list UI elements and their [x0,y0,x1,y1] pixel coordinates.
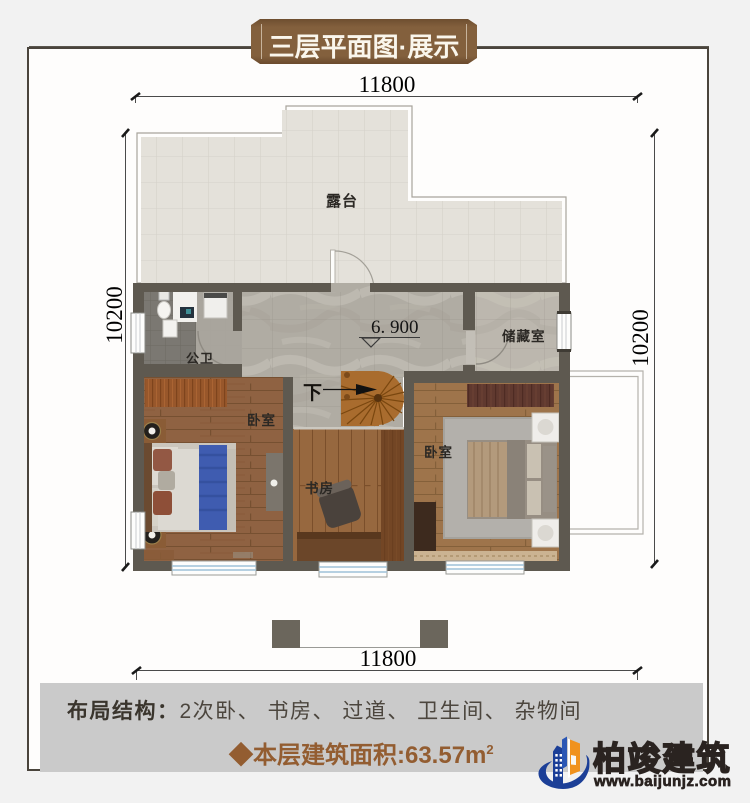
svg-text:露台: 露台 [326,192,358,210]
svg-text:储藏室: 储藏室 [501,328,546,344]
svg-text:公卫: 公卫 [186,351,214,366]
svg-text:6. 900: 6. 900 [371,317,419,338]
svg-text:下: 下 [303,383,322,404]
svg-text:11800: 11800 [360,646,417,671]
svg-text:10200: 10200 [628,309,653,367]
svg-text:卧室: 卧室 [247,412,276,428]
svg-text:卧室: 卧室 [424,444,453,460]
svg-text:11800: 11800 [359,72,416,97]
svg-text:10200: 10200 [102,286,127,344]
svg-text:书房: 书房 [305,480,334,496]
